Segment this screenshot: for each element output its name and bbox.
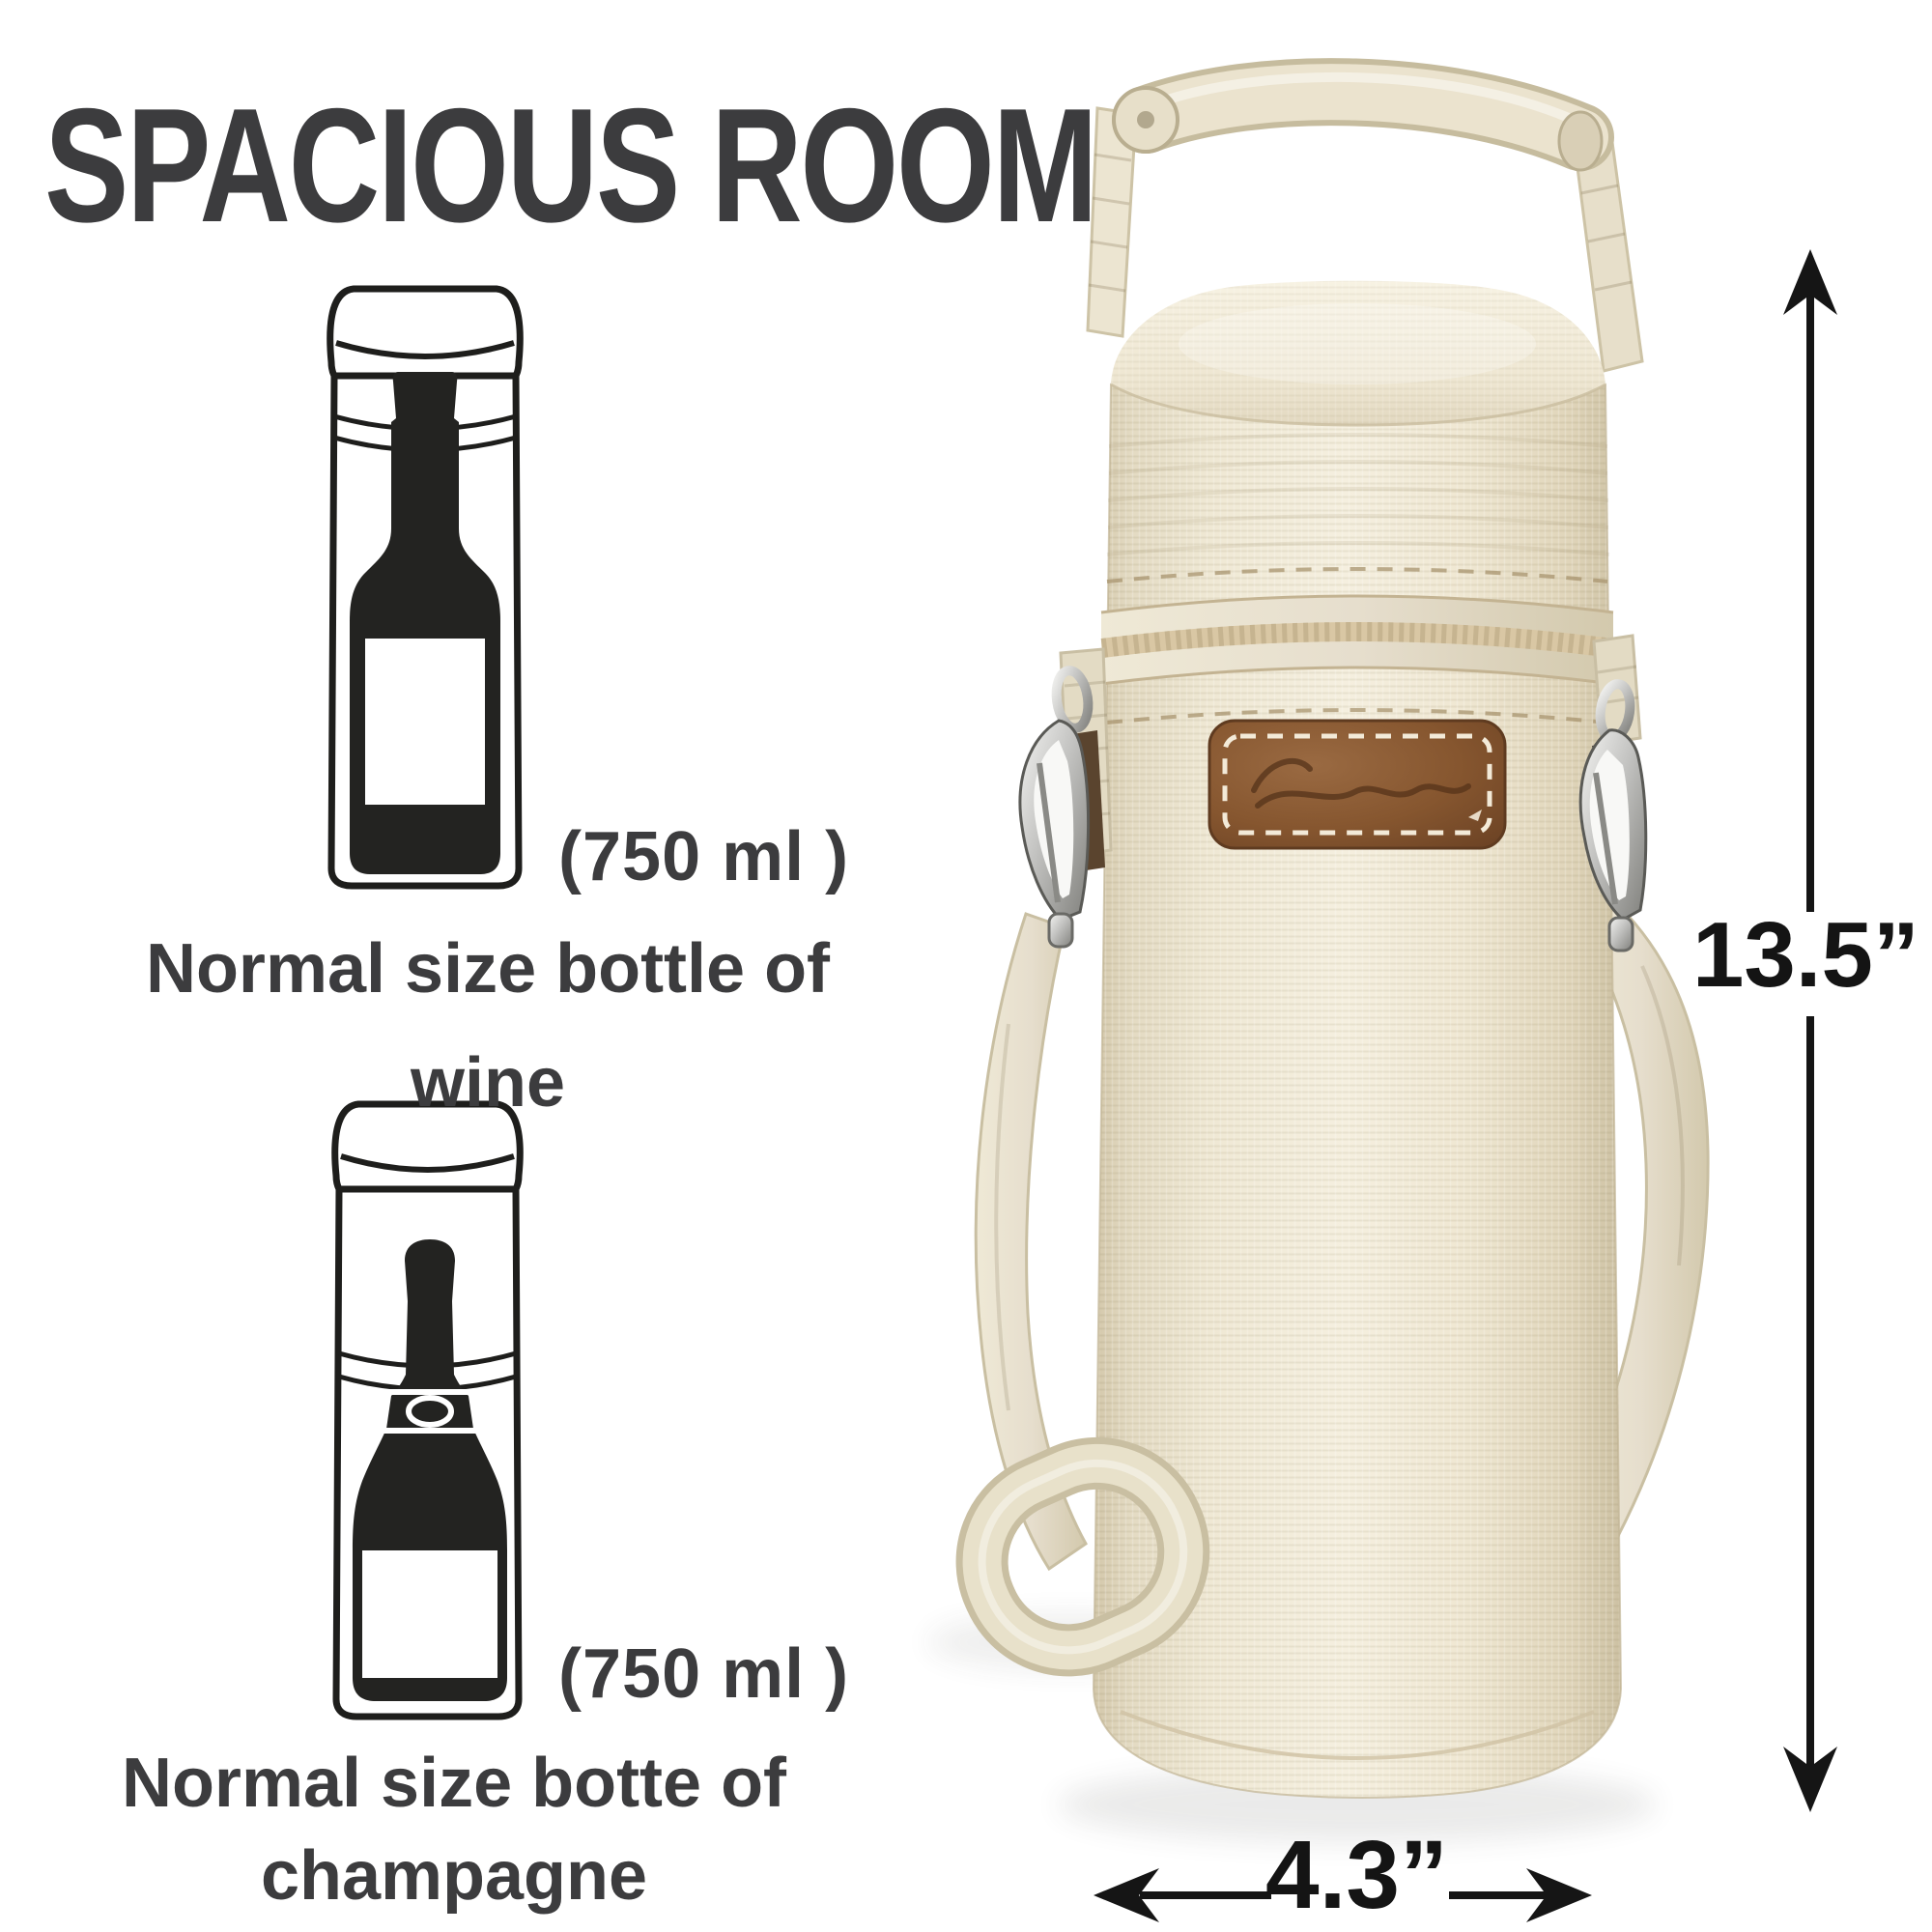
champagne-caption: Normal size botte of champagne <box>58 1737 850 1922</box>
left-snap-hook <box>1020 649 1111 947</box>
wine-volume-label: (750 ml ) <box>558 817 849 896</box>
wine-caption: Normal size bottle of wine <box>87 912 889 1140</box>
leather-logo-patch <box>1209 721 1505 848</box>
champagne-bottle-icon <box>324 1096 531 1724</box>
lid-dome <box>1111 281 1605 425</box>
page-title: SPACIOUS ROOM <box>44 93 1095 238</box>
height-dimension-arrow <box>1783 249 1837 1812</box>
wine-caption-line2: wine <box>87 1026 889 1140</box>
wine-caption-line1: Normal size bottle of <box>87 912 889 1026</box>
width-dimension-label: 4.3” <box>1265 1820 1448 1931</box>
champagne-caption-line1: Normal size botte of <box>58 1737 850 1830</box>
product-infographic: SPACIOUS ROOM (750 ml ) Normal size <box>0 0 1932 1932</box>
champagne-volume-label: (750 ml ) <box>558 1634 849 1714</box>
height-dimension-label: 13.5” <box>1692 902 1919 1009</box>
wine-bottle-icon <box>319 275 531 898</box>
champagne-caption-line2: champagne <box>58 1830 850 1922</box>
